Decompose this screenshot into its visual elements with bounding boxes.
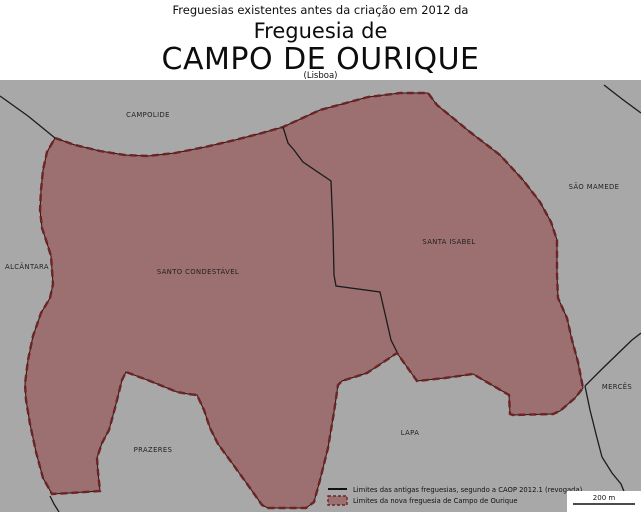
label-campolide: CAMPOLIDE (126, 111, 170, 119)
title-header: Freguesias existentes antes da criação e… (0, 0, 641, 80)
label-lapa: LAPA (401, 429, 420, 437)
label-santo-condestavel: SANTO CONDESTÁVEL (157, 267, 239, 276)
legend-item-new-parish: Limites da nova freguesia de Campo de Ou… (353, 497, 518, 505)
label-merces: MERCÊS (602, 382, 632, 391)
label-prazeres: PRAZERES (134, 446, 173, 454)
label-alcantara: ALCÂNTARA (5, 262, 49, 271)
legend-fill-swatch (328, 496, 347, 505)
map-figure: CAMPOLIDE SÃO MAMEDE ALCÂNTARA SANTO CON… (0, 0, 641, 512)
label-sao-mamede: SÃO MAMEDE (569, 182, 620, 191)
scalebar-label: 200 m (593, 494, 616, 502)
map-supertitle: Freguesias existentes antes da criação e… (0, 4, 641, 17)
scalebar: 200 m (567, 491, 641, 512)
map-subtitle: (Lisboa) (0, 72, 641, 81)
label-santa-isabel: SANTA ISABEL (422, 238, 475, 246)
map-title-line2: Freguesia de (0, 19, 641, 43)
legend-item-old-boundaries: Limites das antigas freguesias, segundo … (353, 486, 583, 494)
